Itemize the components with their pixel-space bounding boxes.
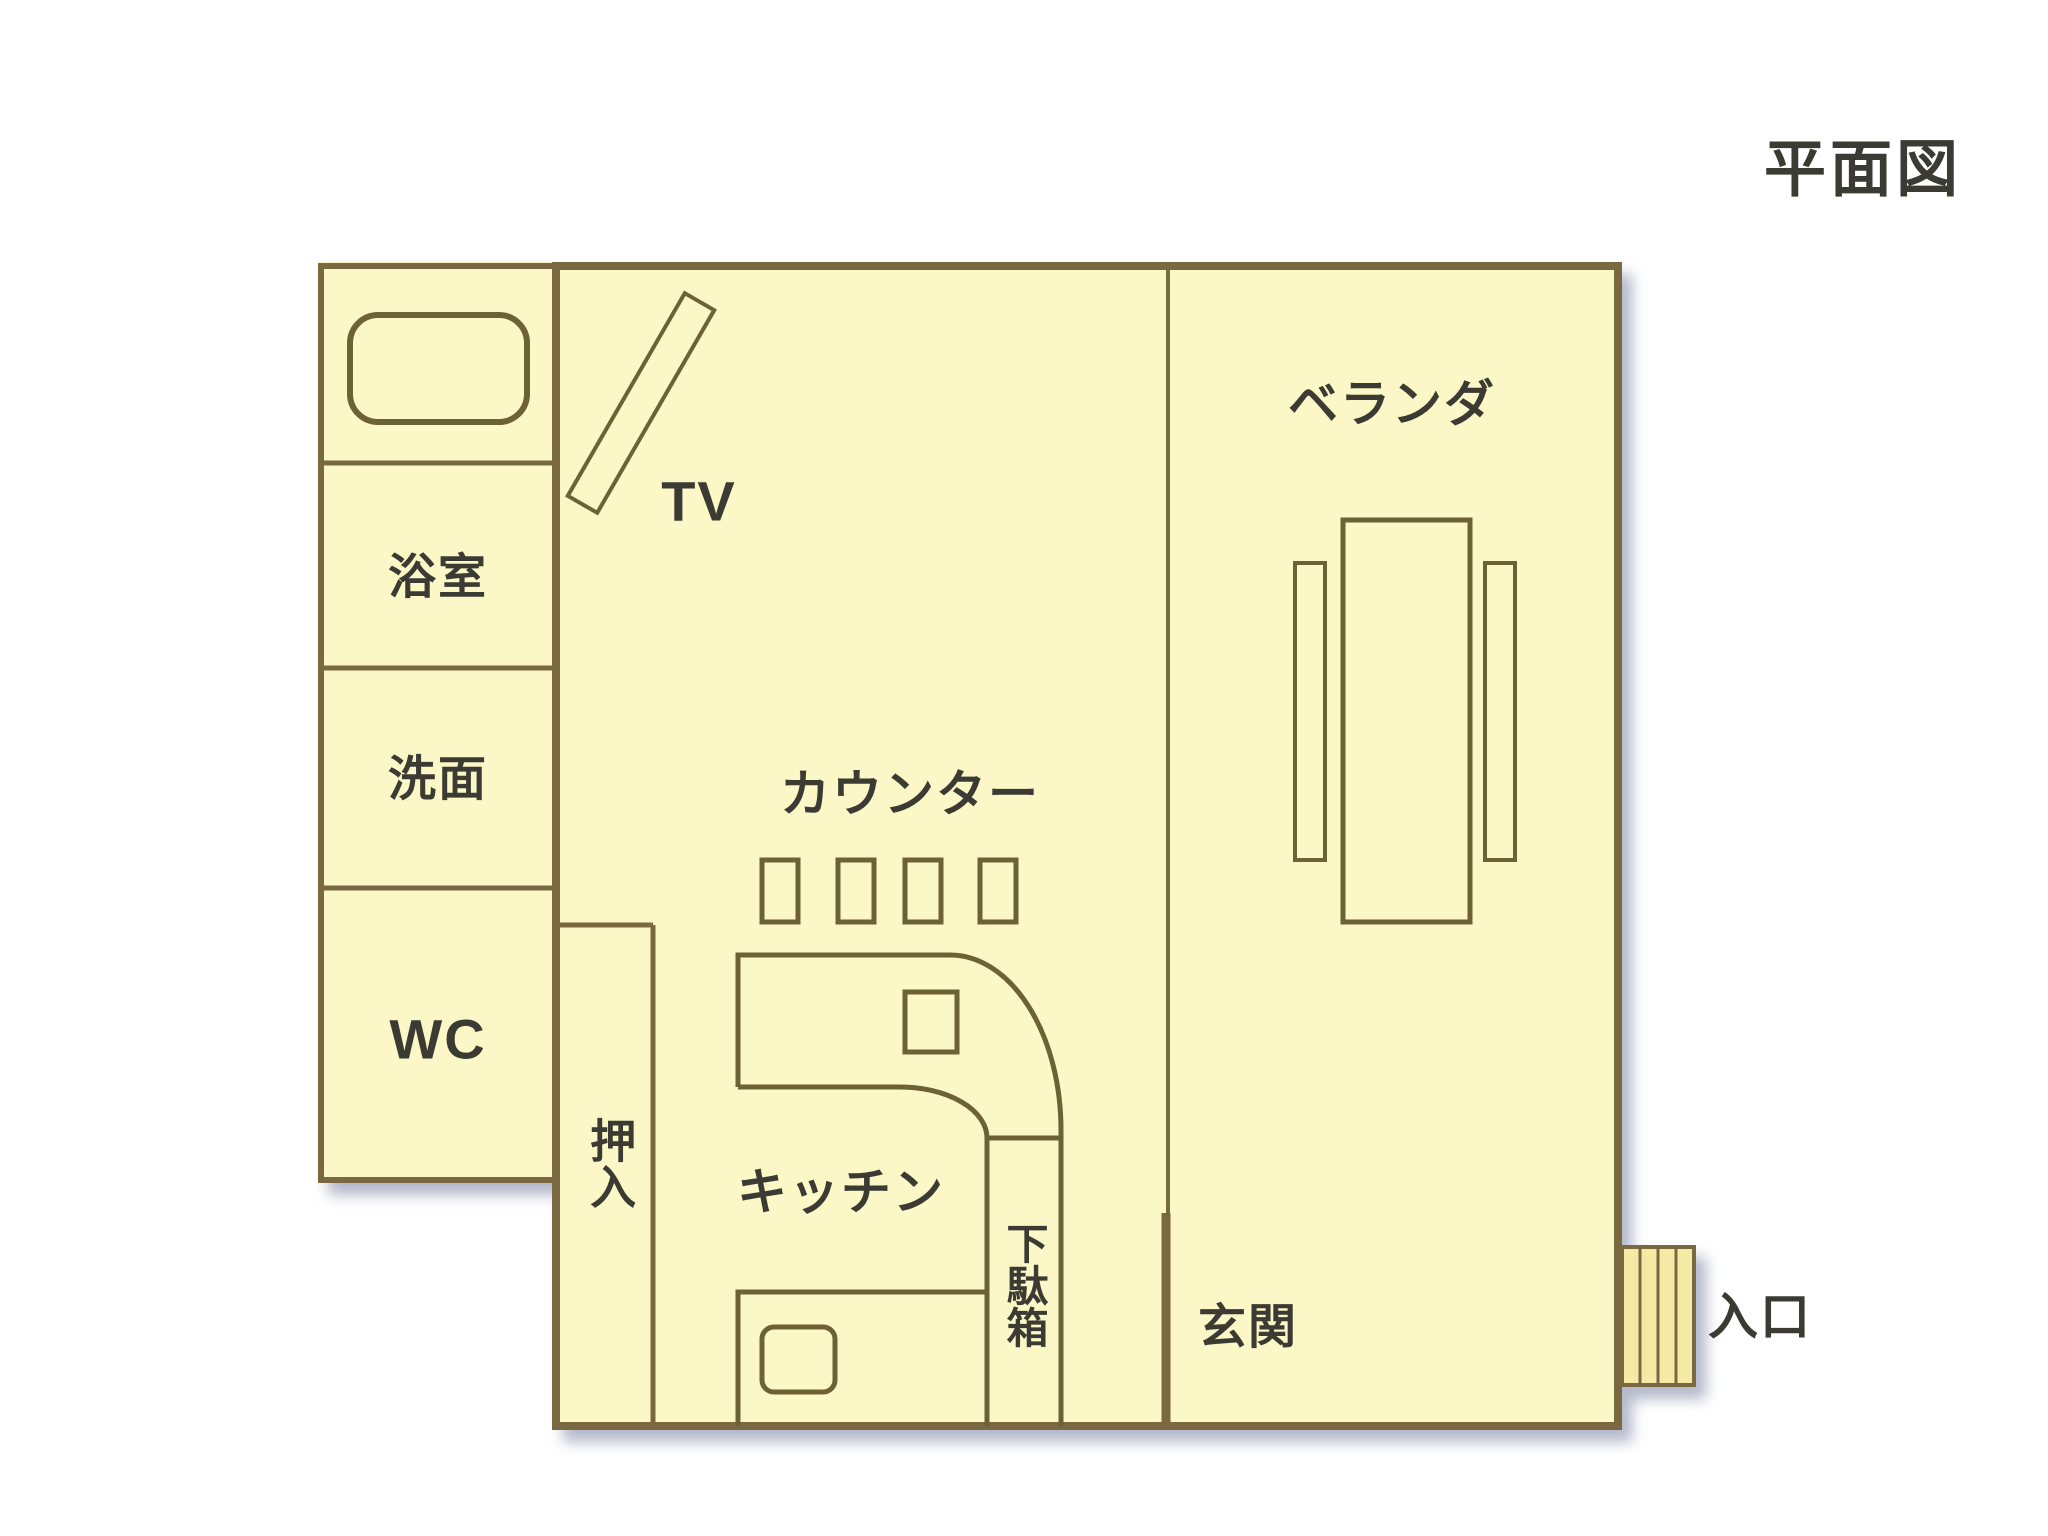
label-entrance-hall: 玄関: [1198, 1303, 1298, 1353]
label-washbasin: 洗面: [388, 755, 488, 805]
label-counter: カウンター: [780, 768, 1040, 821]
label-shoe-cabinet: 下駄箱: [1002, 1222, 1046, 1348]
label-veranda: ベランダ: [1288, 378, 1496, 431]
label-bathroom: 浴室: [388, 553, 488, 603]
building-fill: [553, 262, 1622, 1430]
page-title: 平面図: [1764, 137, 1962, 202]
label-entrance: 入口: [1708, 1291, 1812, 1344]
floor-plan-page: 平面図 浴室 洗面 WC TV カウンター キッチン 押入 下駄箱 玄関 ベラン…: [0, 0, 2048, 1536]
label-closet: 押入: [586, 1117, 634, 1209]
label-wc: WC: [389, 1011, 486, 1070]
label-tv: TV: [661, 473, 737, 532]
label-kitchen: キッチン: [737, 1166, 945, 1219]
